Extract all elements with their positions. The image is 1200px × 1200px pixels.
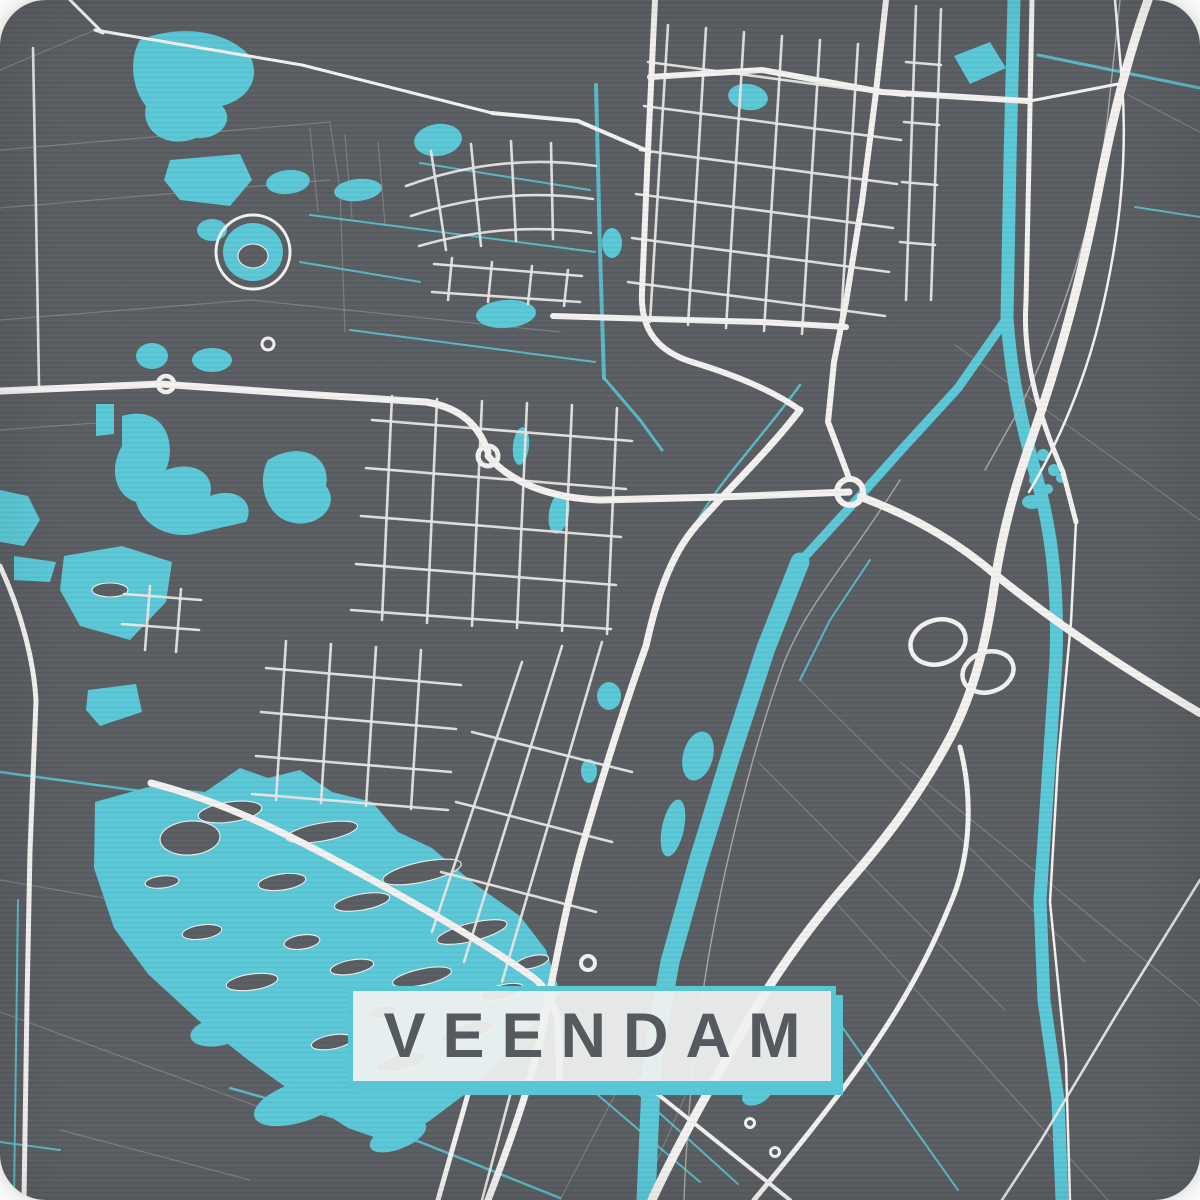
city-map-poster: VEENDAM — [0, 0, 1200, 1200]
city-name-label: VEENDAM — [383, 1005, 817, 1068]
city-name-label-box: VEENDAM — [348, 986, 836, 1086]
